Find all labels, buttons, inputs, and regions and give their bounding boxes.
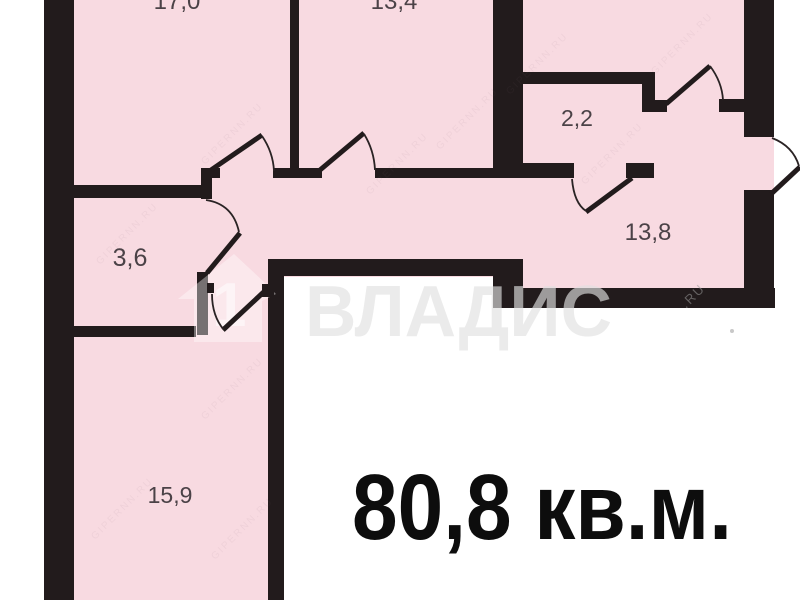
svg-text:15,9: 15,9 [148,482,193,508]
svg-text:80,8 кв.м.: 80,8 кв.м. [352,455,732,559]
svg-text:1: 1 [212,271,246,340]
svg-text:2,2: 2,2 [561,105,593,131]
svg-text:17,0: 17,0 [154,0,201,15]
svg-text:13,8: 13,8 [625,219,672,246]
svg-text:3,6: 3,6 [113,244,148,272]
svg-text:ВЛАДИС: ВЛАДИС [305,272,612,352]
svg-text:13,4: 13,4 [371,0,418,15]
